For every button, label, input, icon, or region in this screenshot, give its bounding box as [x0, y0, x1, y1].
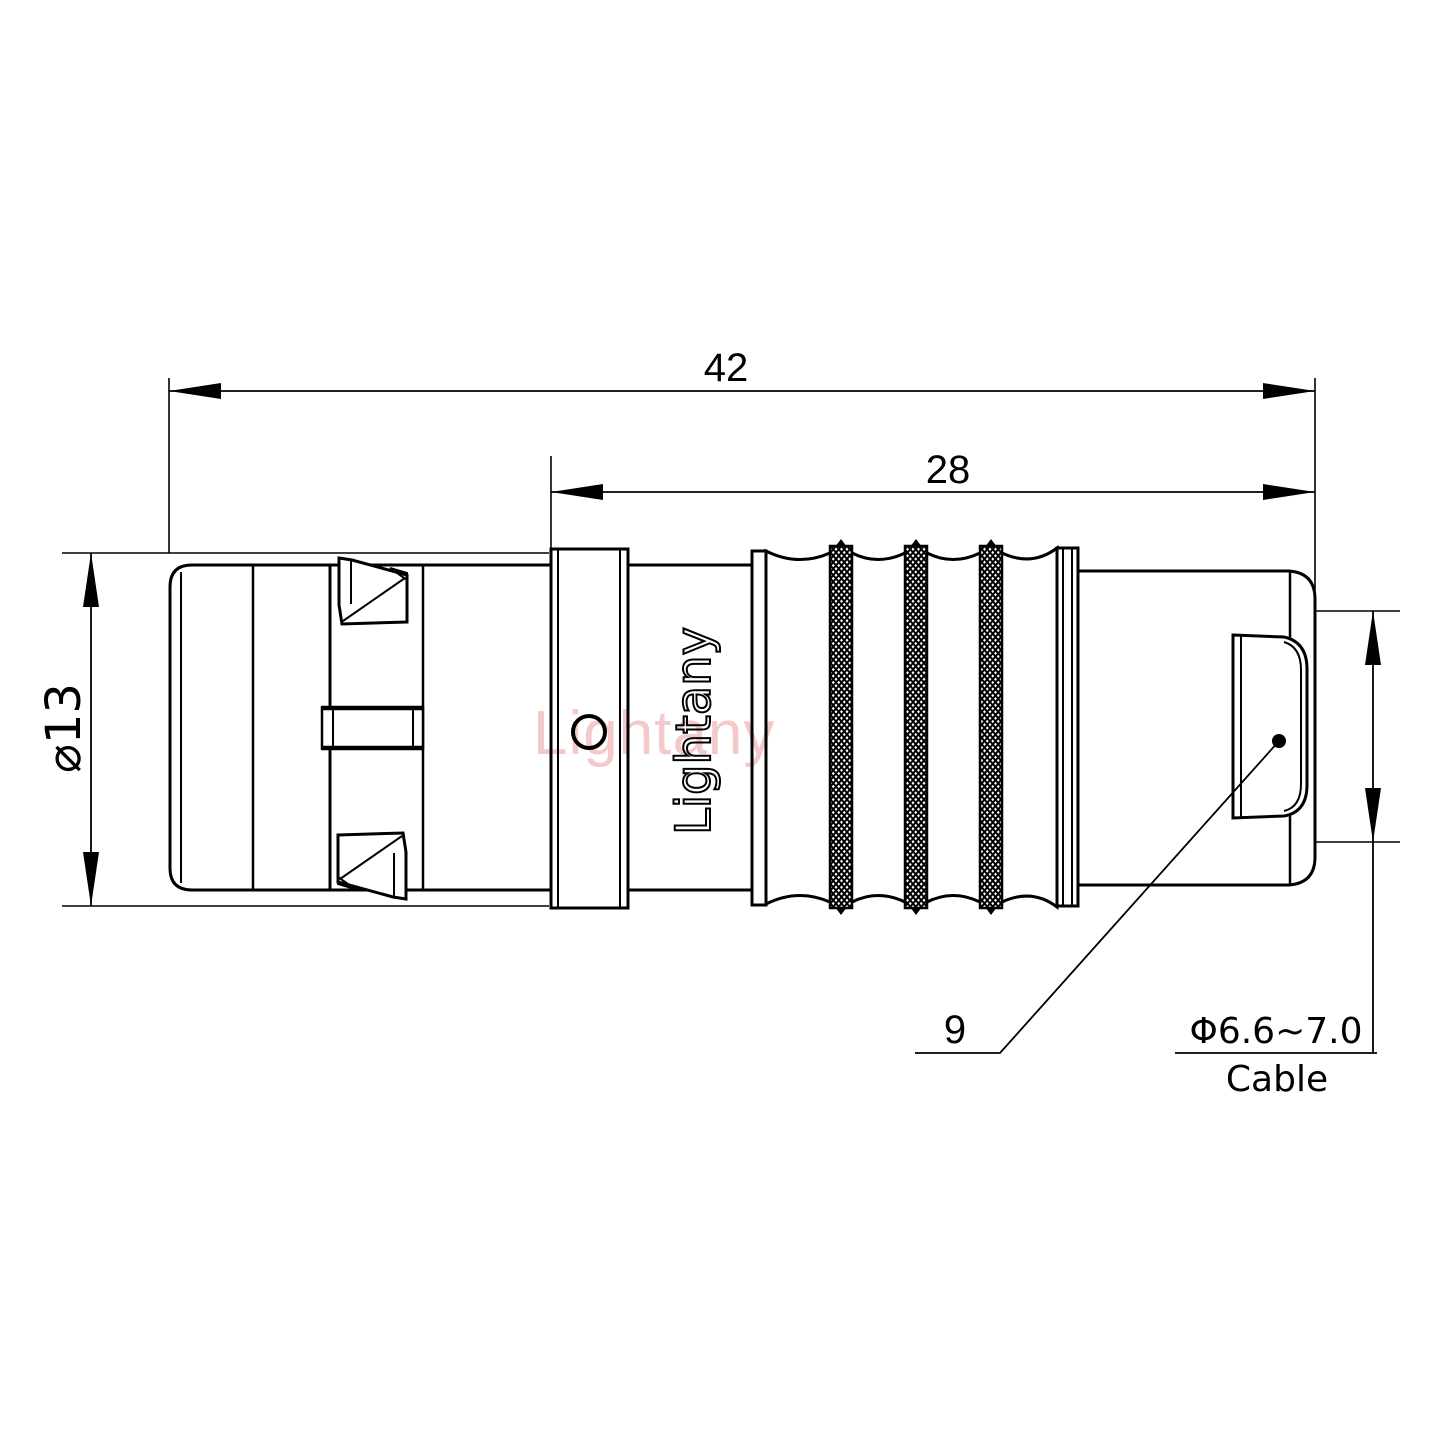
knurl-band-2-tip-bottom: [910, 907, 922, 915]
dim-text-42: 42: [704, 346, 749, 390]
item-ref-text: 9: [944, 1008, 966, 1052]
arrowhead-dia13-bottom: [83, 852, 99, 906]
cable-entry-window: [1233, 635, 1307, 818]
knurl-band-2-tip-top: [910, 539, 922, 547]
arrowhead-28-left: [551, 484, 603, 500]
knurl-band-3-fill: [980, 546, 1002, 908]
latch-window: [322, 708, 423, 748]
connector-drawing-svg: Lightany 42 28 ⌀13 9 Φ6.6~7.0 Cable Ligh…: [0, 0, 1440, 1440]
knurl-band-1-fill: [830, 546, 852, 908]
dim-text-28: 28: [926, 448, 971, 492]
cable-label-text: Cable: [1226, 1059, 1328, 1100]
knurl-band-3: [980, 539, 1002, 915]
arrowhead-42-left: [169, 383, 221, 399]
knurl-band-1-tip-top: [835, 539, 847, 547]
knurl-band-3-tip-top: [985, 539, 997, 547]
front-cap: [170, 565, 330, 890]
drawing-canvas: Lightany 42 28 ⌀13 9 Φ6.6~7.0 Cable Ligh…: [0, 0, 1440, 1440]
arrowhead-dia13-top: [83, 553, 99, 607]
knurl-band-1: [830, 539, 852, 915]
knurl-band-3-tip-bottom: [985, 907, 997, 915]
arrowhead-cable-top: [1365, 611, 1381, 665]
rear-flange: [1057, 548, 1078, 906]
watermark-text: Lightany: [533, 699, 775, 768]
knurl-band-2: [905, 539, 927, 915]
cable-hole-dot: [1272, 734, 1286, 748]
arrowhead-42-right: [1263, 383, 1315, 399]
arrowhead-cable-bottom: [1365, 788, 1381, 842]
knurl-band-1-tip-bottom: [835, 907, 847, 915]
arrowhead-28-right: [1263, 484, 1315, 500]
dim-text-dia13: ⌀13: [36, 683, 92, 773]
knurl-band-2-fill: [905, 546, 927, 908]
cable-diameter-text: Φ6.6~7.0: [1189, 1011, 1362, 1052]
